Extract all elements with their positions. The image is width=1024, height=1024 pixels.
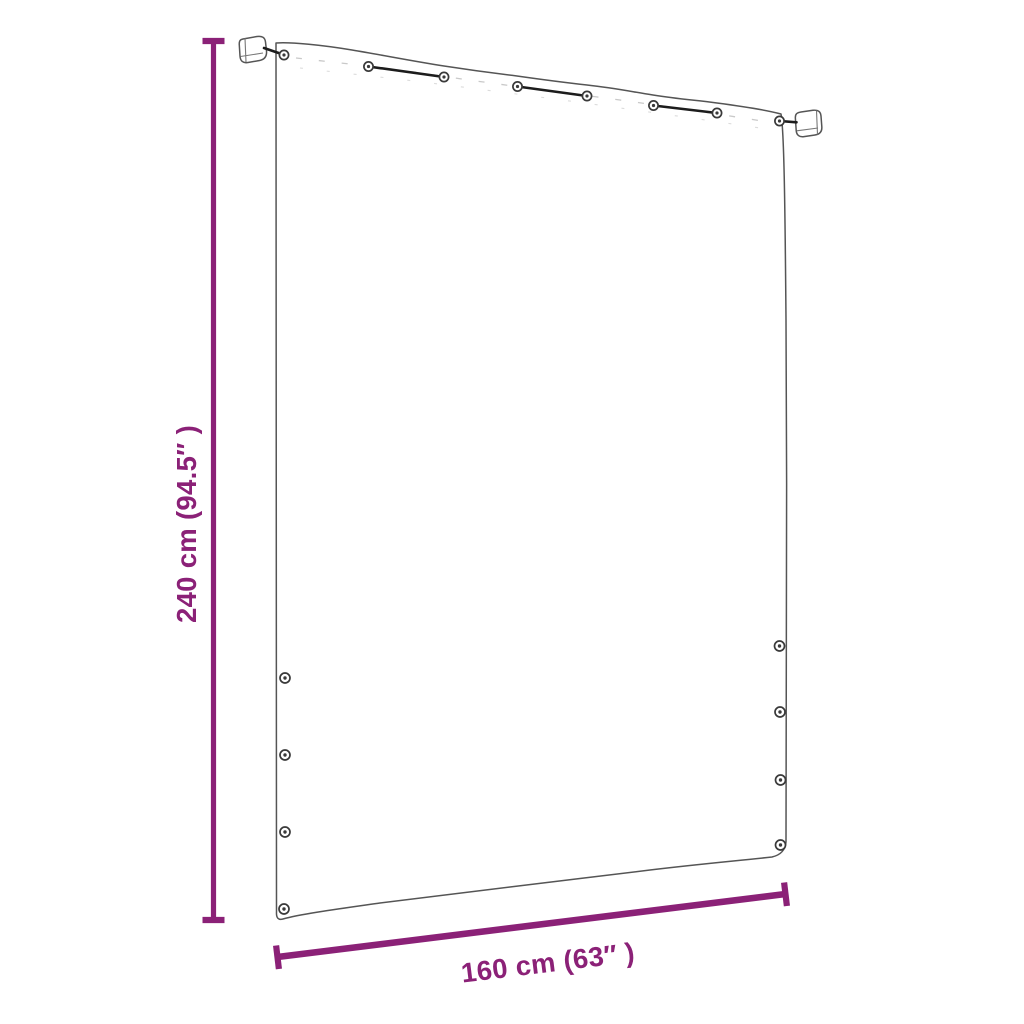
height-dimension: 240 cm (94.5″ ) [171, 41, 225, 920]
grommet [775, 641, 785, 651]
grommet [513, 82, 522, 91]
diagram-canvas: 240 cm (94.5″ ) 160 cm (63″ ) [0, 0, 1024, 1024]
left-bracket-body [239, 36, 266, 62]
height-dimension-label: 240 cm (94.5″ ) [171, 425, 202, 623]
curtain-panel [276, 43, 787, 920]
grommet [364, 62, 373, 71]
left-bracket [239, 36, 266, 62]
grommet [775, 707, 785, 717]
grommet [776, 840, 786, 850]
grommet [280, 750, 290, 760]
grommet [582, 91, 591, 100]
curtain-outline [276, 43, 787, 920]
grommet [775, 116, 784, 125]
width-dimension-label: 160 cm (63″ ) [459, 937, 636, 989]
grommet [649, 101, 658, 110]
width-dimension-cap-right [784, 883, 787, 907]
grommet [439, 72, 448, 81]
right-bracket [795, 110, 821, 137]
grommet [776, 775, 786, 785]
grommet [280, 827, 290, 837]
grommet [712, 108, 721, 117]
grommet [279, 904, 289, 914]
product-dimension-diagram: 240 cm (94.5″ ) 160 cm (63″ ) [0, 0, 1024, 1024]
width-dimension-cap-left [276, 946, 279, 970]
grommet [279, 50, 288, 59]
grommet [280, 673, 290, 683]
